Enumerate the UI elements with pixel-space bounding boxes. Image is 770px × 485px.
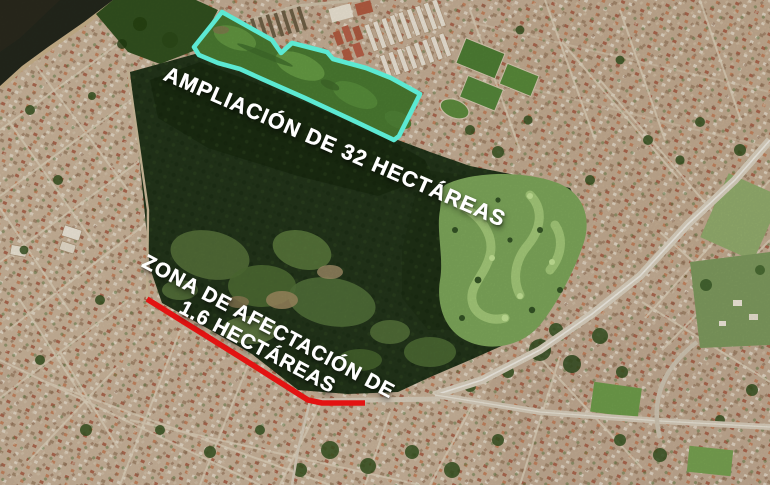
grain-overlay <box>0 0 770 485</box>
satellite-map: AMPLIACIÓN DE 32 HECTÁREAS ZONA DE AFECT… <box>0 0 770 485</box>
satellite-basemap <box>0 0 770 485</box>
